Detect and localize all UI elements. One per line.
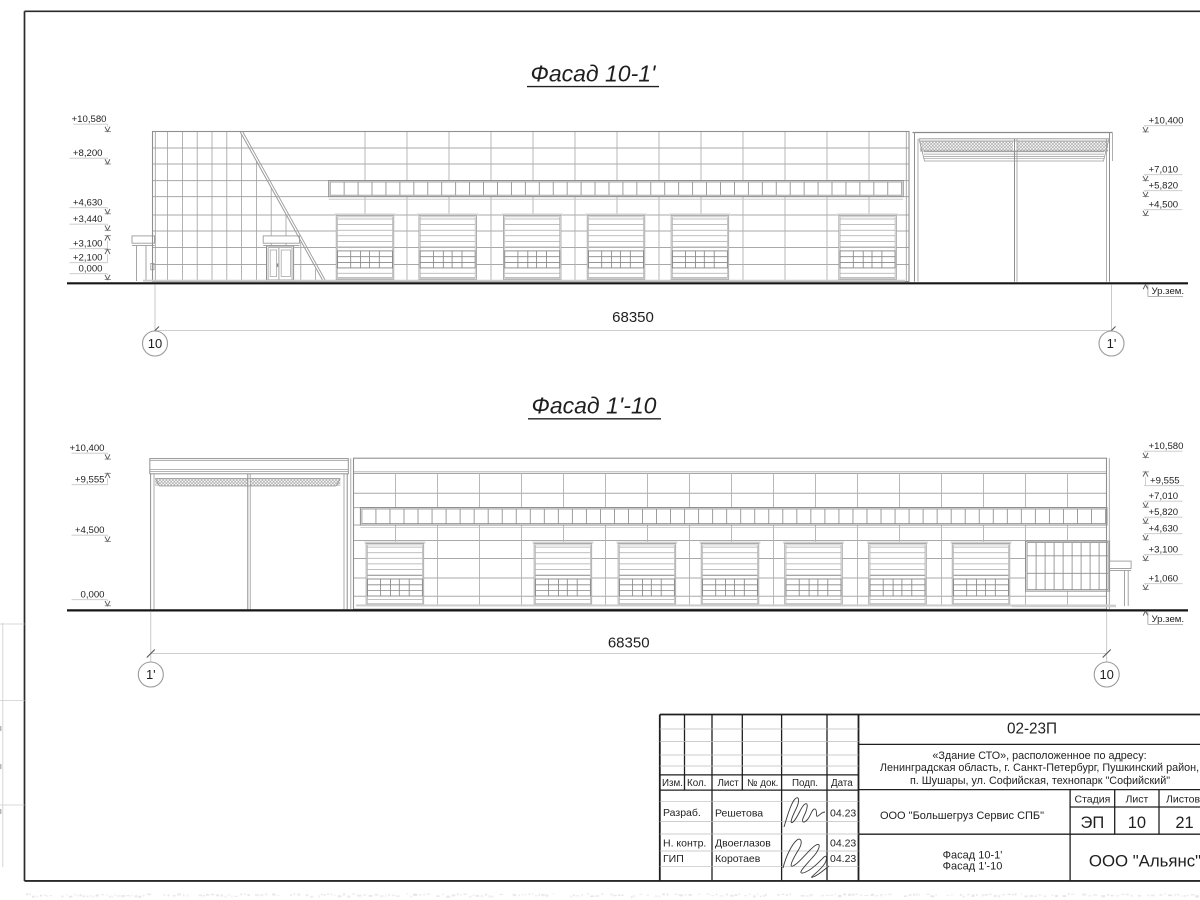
svg-text:Фасад 1'-10: Фасад 1'-10	[532, 393, 657, 419]
svg-text:68350: 68350	[608, 635, 650, 652]
svg-text:Фасад 10-1': Фасад 10-1'	[531, 61, 658, 87]
svg-text:10: 10	[148, 336, 162, 351]
svg-text:+3,100: +3,100	[73, 239, 103, 250]
svg-text:+8,200: +8,200	[73, 148, 103, 159]
svg-text:Фасад 1'-10: Фасад 1'-10	[943, 861, 1003, 873]
svg-text:№ док.: № док.	[747, 778, 778, 789]
svg-text:+5,820: +5,820	[1149, 507, 1179, 518]
svg-text:+1,060: +1,060	[1149, 574, 1179, 585]
svg-text:0,000: 0,000	[78, 264, 102, 275]
svg-text:+7,010: +7,010	[1149, 491, 1179, 502]
svg-text:10: 10	[1099, 667, 1113, 682]
svg-text:04.23: 04.23	[830, 808, 856, 820]
svg-text:+3,100: +3,100	[1149, 545, 1179, 556]
svg-text:«Здание СТО», расположенное по: «Здание СТО», расположенное по адресу:	[932, 750, 1146, 762]
svg-text:1': 1'	[146, 667, 156, 682]
svg-text:02-23П: 02-23П	[1007, 721, 1057, 738]
svg-text:+10,400: +10,400	[1149, 116, 1184, 127]
svg-text:68350: 68350	[612, 309, 654, 326]
svg-text:Дата: Дата	[831, 778, 853, 789]
svg-text:Ленинградская область, г. Санк: Ленинградская область, г. Санкт-Петербур…	[880, 762, 1199, 774]
svg-text:+2,100: +2,100	[73, 253, 103, 264]
svg-text:Листов: Листов	[1166, 794, 1200, 806]
svg-text:ООО "Большегруз Сервис СПБ": ООО "Большегруз Сервис СПБ"	[880, 810, 1044, 822]
svg-text:Изм.: Изм.	[662, 778, 683, 789]
svg-text:+4,630: +4,630	[73, 198, 103, 209]
svg-text:Коротаев: Коротаев	[715, 853, 761, 865]
svg-text:Лист: Лист	[1125, 794, 1148, 806]
svg-text:Ур.зем.: Ур.зем.	[1152, 614, 1185, 625]
svg-text:Разраб.: Разраб.	[663, 807, 701, 819]
svg-text:04.23: 04.23	[830, 838, 856, 850]
svg-text:Кол.: Кол.	[687, 778, 706, 789]
svg-text:+10,580: +10,580	[1149, 441, 1184, 452]
svg-text:+7,010: +7,010	[1149, 165, 1179, 176]
svg-text:+4,500: +4,500	[1149, 200, 1179, 211]
svg-text:+4,500: +4,500	[75, 525, 105, 536]
svg-text:+5,820: +5,820	[1149, 181, 1179, 192]
svg-text:Ур.зем.: Ур.зем.	[1152, 286, 1185, 297]
svg-text:10: 10	[1128, 814, 1146, 832]
svg-text:0,000: 0,000	[80, 590, 104, 601]
svg-text:+9,555: +9,555	[1150, 476, 1180, 487]
svg-text:+10,580: +10,580	[72, 114, 107, 125]
svg-text:Двоеглазов: Двоеглазов	[715, 838, 771, 850]
svg-text:04.23: 04.23	[830, 853, 856, 865]
svg-text:ООО "Альянс": ООО "Альянс"	[1089, 852, 1200, 871]
svg-text:+10,400: +10,400	[70, 443, 105, 454]
svg-text:ГИП: ГИП	[663, 853, 684, 865]
svg-text:21: 21	[1175, 814, 1193, 832]
svg-text:п. Шушары, ул. Софийская, техн: п. Шушары, ул. Софийская, технопарк "Соф…	[910, 775, 1170, 787]
svg-text:+3,440: +3,440	[73, 214, 103, 225]
svg-text:+9,555: +9,555	[75, 475, 105, 486]
svg-text:Стадия: Стадия	[1075, 794, 1111, 806]
svg-text:+4,630: +4,630	[1149, 524, 1179, 535]
svg-text:Решетова: Решетова	[715, 808, 763, 820]
svg-text:Н. контр.: Н. контр.	[663, 838, 706, 850]
svg-text:1': 1'	[1107, 336, 1117, 351]
svg-text:Лист: Лист	[718, 778, 740, 789]
svg-text:ЭП: ЭП	[1081, 814, 1105, 832]
svg-text:Подп.: Подп.	[792, 778, 818, 789]
